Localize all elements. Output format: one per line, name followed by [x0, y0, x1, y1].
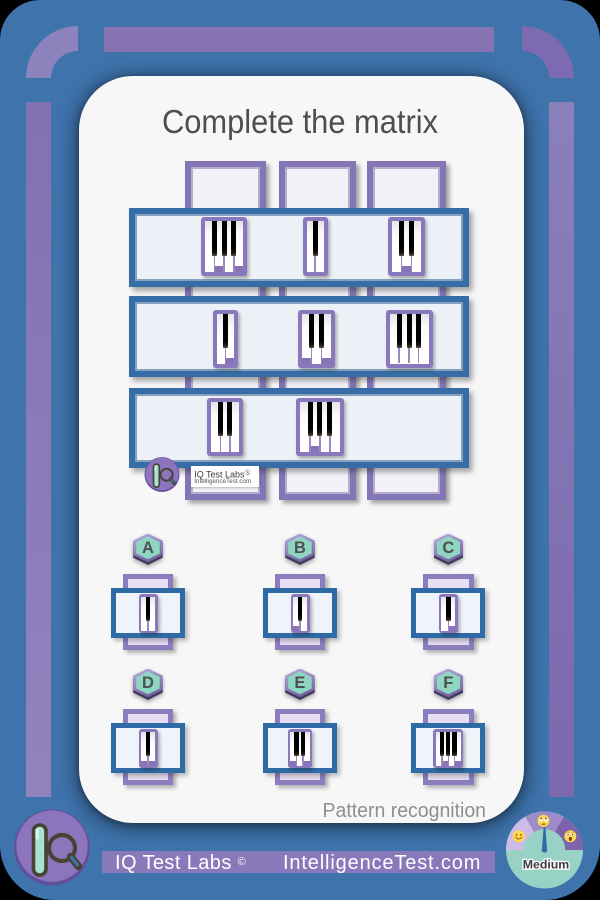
svg-text:Medium: Medium — [523, 858, 570, 872]
